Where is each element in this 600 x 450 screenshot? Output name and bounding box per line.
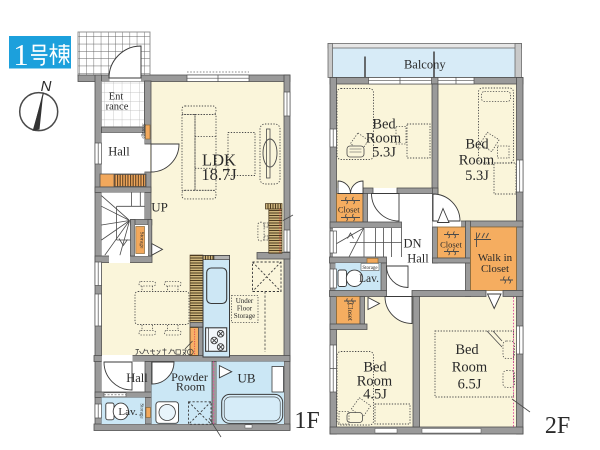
svg-text:Lav.: Lav. [359,273,379,285]
svg-text:6.5J: 6.5J [458,377,482,393]
svg-text:Hall: Hall [108,145,130,159]
svg-text:Lav.: Lav. [118,406,137,418]
svg-text:4.5J: 4.5J [363,387,387,403]
svg-text:18.7J: 18.7J [201,165,237,184]
svg-text:UB: UB [237,371,255,386]
svg-text:2F: 2F [545,413,570,439]
svg-text:DN: DN [403,237,421,251]
svg-text:Storage: Storage [362,266,378,271]
svg-text:5.3J: 5.3J [372,145,396,161]
svg-text:Room: Room [176,380,206,394]
svg-text:N: N [41,78,52,95]
svg-text:rance: rance [106,102,129,113]
svg-text:Balcony: Balcony [404,58,446,72]
svg-text:Bed: Bed [465,137,489,153]
svg-text:Bed: Bed [455,342,479,358]
svg-text:5.3J: 5.3J [465,168,489,184]
svg-text:Storage: Storage [138,232,144,249]
svg-text:UP: UP [151,200,168,215]
svg-text:Hall: Hall [407,252,429,266]
svg-text:1: 1 [13,37,29,72]
svg-text:Storage: Storage [234,312,255,320]
svg-text:Storage: Storage [140,123,145,139]
svg-text:1F: 1F [294,408,319,434]
svg-text:Storage: Storage [139,403,144,419]
svg-text:Closet: Closet [440,240,462,250]
svg-text:Room: Room [452,360,488,376]
svg-text:Closet: Closet [346,303,354,321]
svg-text:Closet: Closet [338,205,360,215]
svg-text:Room: Room [459,153,495,169]
svg-text:Closet: Closet [481,263,509,275]
svg-text:Hall: Hall [126,371,148,385]
